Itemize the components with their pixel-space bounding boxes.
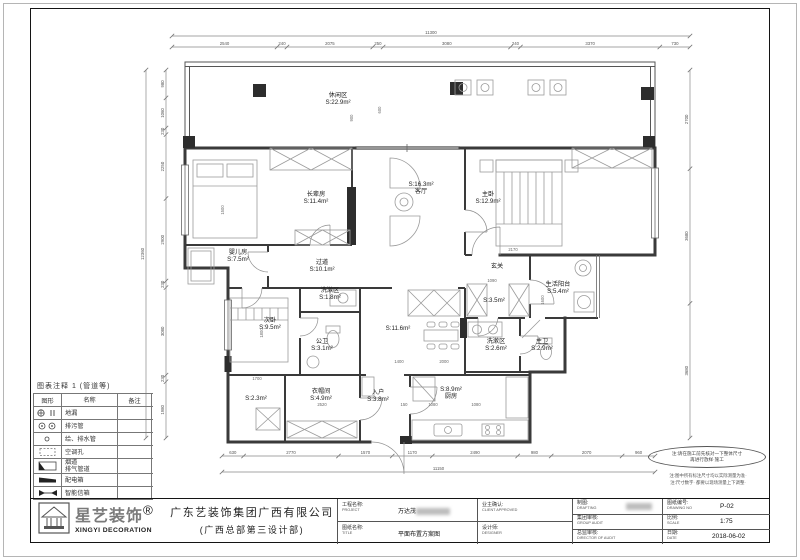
legend-table: 图表注释 1 (管道等) 图形名称备注地漏排污管给、排水管空调孔烟道 排气管道配… xyxy=(33,381,153,500)
company-line1: 广东艺装饰集团广西有限公司 xyxy=(168,504,336,520)
legend-row: 空调孔 xyxy=(34,446,153,459)
room-label: 洗漱区S:2.6m² xyxy=(485,337,507,352)
room-label: S:8.9m²厨房 xyxy=(440,386,462,400)
room-label: 长辈房S:11.4m² xyxy=(304,190,329,205)
power-box-icon xyxy=(34,474,62,486)
svg-text:1170: 1170 xyxy=(408,450,418,455)
room-label: 入户S:3.8m² xyxy=(367,388,389,403)
svg-text:1500: 1500 xyxy=(220,205,225,215)
legend-header-row: 图形名称备注 xyxy=(34,394,153,407)
room-label: S:3.5m² xyxy=(483,297,505,304)
legend-row: 烟道 排气管道 xyxy=(34,459,153,474)
registered-mark: ® xyxy=(143,503,153,518)
floor-drain-icon xyxy=(34,407,62,419)
svg-text:240: 240 xyxy=(278,41,286,46)
doors xyxy=(242,210,554,474)
room-label: S:11.6m² xyxy=(386,325,411,332)
svg-text:1700: 1700 xyxy=(252,376,262,381)
drawing-sheet: 1130025402402075250308024033707306302770… xyxy=(0,0,800,560)
redacted-text xyxy=(416,508,450,515)
room-label: 婴儿房S:7.5m² xyxy=(227,248,249,263)
room-label: 生活阳台S:5.4m² xyxy=(546,280,571,295)
svg-text:3080: 3080 xyxy=(442,41,452,46)
company-logo: 星艺装饰® XINGYI DECORATION xyxy=(38,502,168,534)
svg-text:1090: 1090 xyxy=(487,278,497,283)
svg-text:3680: 3680 xyxy=(684,365,689,375)
svg-text:2520: 2520 xyxy=(317,402,327,407)
svg-text:630: 630 xyxy=(229,450,237,455)
drawing-no-value: P-02 xyxy=(720,503,734,510)
svg-text:2250: 2250 xyxy=(160,161,165,171)
svg-text:11300: 11300 xyxy=(425,30,437,35)
date-label: 日期: DATE xyxy=(667,531,678,541)
svg-text:3680: 3680 xyxy=(684,231,689,241)
client-approved-label: 业主确认: CLIENT APPROVED xyxy=(482,503,517,513)
legend-row: 给、排水管 xyxy=(34,433,153,446)
note-line: 再进行放样·施工 xyxy=(649,457,765,463)
drafting-value xyxy=(626,503,652,510)
svg-text:3080: 3080 xyxy=(160,326,165,336)
designer-label: 设计师: DESIGNER xyxy=(482,526,502,536)
room-label: S:2.3m² xyxy=(245,395,267,402)
svg-text:600: 600 xyxy=(377,106,382,114)
room-label: 衣帽间S:4.9m² xyxy=(310,387,332,402)
svg-text:11150: 11150 xyxy=(433,466,445,471)
room-label: 过道S:10.1m² xyxy=(309,258,334,273)
logo-emblem-icon xyxy=(38,502,70,534)
room-label: 公卫S:3.1m² xyxy=(311,338,333,352)
water-pipe-icon xyxy=(34,433,62,445)
svg-text:230: 230 xyxy=(160,280,165,288)
svg-text:1060: 1060 xyxy=(160,108,165,118)
svg-text:1400: 1400 xyxy=(394,359,404,364)
legend-title: 图表注释 1 (管道等) xyxy=(33,381,153,391)
group-audit-label: 集团审核: GROUP AUDIT xyxy=(577,516,603,526)
legend-row: 地漏 xyxy=(34,407,153,420)
room-label: 主卧S:12.9m² xyxy=(475,190,500,205)
brand-subtitle: XINGYI DECORATION xyxy=(75,527,153,534)
title-block: 星艺装饰® XINGYI DECORATION 广东艺装饰集团广西有限公司 (广… xyxy=(30,498,770,543)
furniture xyxy=(188,80,652,440)
divider xyxy=(662,499,663,544)
svg-text:12360: 12360 xyxy=(140,247,145,260)
divider xyxy=(572,499,573,544)
company-name: 广东艺装饰集团广西有限公司 (广西总部第三设计部) xyxy=(168,504,336,536)
svg-text:960: 960 xyxy=(635,450,643,455)
drawing-title-value: 平面布置方案图 xyxy=(398,529,440,538)
note-line: 注:尺寸数字· 都要以现场测量上下调整· xyxy=(648,480,768,487)
room-label: 次卧S:9.5m² xyxy=(259,316,281,331)
svg-text:230: 230 xyxy=(160,127,165,135)
company-line2: (广西总部第三设计部) xyxy=(168,523,336,536)
site-note-ellipse: 注:请在施工前先核对一下整体尺寸 再进行放样·施工 xyxy=(648,446,766,468)
project-value: 万达茂 xyxy=(398,506,450,515)
room-label: 洗漱区S:1.8m² xyxy=(319,286,341,301)
room-label: 玄关 xyxy=(491,262,503,270)
svg-text:980: 980 xyxy=(160,80,165,88)
legend-row: 配电箱 xyxy=(34,474,153,487)
ac-hole-icon xyxy=(34,446,62,458)
flue-icon xyxy=(34,459,62,473)
legend-rows: 图形名称备注地漏排污管给、排水管空调孔烟道 排气管道配电箱智能信箱 xyxy=(33,393,153,500)
svg-text:3370: 3370 xyxy=(585,41,595,46)
svg-text:2490: 2490 xyxy=(470,450,480,455)
room-label: 休闲区S:22.9m² xyxy=(325,91,350,106)
columns xyxy=(183,82,655,444)
svg-text:2900: 2900 xyxy=(160,234,165,244)
director-audit-label: 总监审核: DIRECTOR OF AUDIT xyxy=(577,531,615,541)
redacted-text xyxy=(626,503,652,510)
brand-name: 星艺装饰 xyxy=(75,508,143,525)
scale-value: 1:75 xyxy=(720,518,733,525)
svg-text:980: 980 xyxy=(531,450,539,455)
room-label: 主卫S:2.9m² xyxy=(531,337,553,352)
svg-text:2075: 2075 xyxy=(325,41,335,46)
date-value: 2018-06-02 xyxy=(712,533,745,540)
svg-text:730: 730 xyxy=(671,41,679,46)
legend-row: 排污管 xyxy=(34,420,153,433)
svg-text:2170: 2170 xyxy=(508,247,518,252)
svg-text:2770: 2770 xyxy=(286,450,296,455)
svg-text:1980: 1980 xyxy=(160,404,165,414)
drafting-label: 制图: DRAFTING xyxy=(577,501,596,511)
svg-text:2540: 2540 xyxy=(220,41,230,46)
balcony-outline xyxy=(185,62,655,148)
svg-text:1080: 1080 xyxy=(471,402,481,407)
svg-text:1600: 1600 xyxy=(540,295,545,305)
project-label: 工程名称: PROJECT xyxy=(342,503,363,513)
svg-text:2000: 2000 xyxy=(439,359,449,364)
site-notes: 注:图中所有标注尺寸均以实际测量为准· 注:尺寸数字· 都要以现场测量上下调整· xyxy=(648,473,768,486)
drawing-no-label: 图纸编号: DRAWING NO xyxy=(667,501,692,511)
svg-text:1570: 1570 xyxy=(361,450,371,455)
svg-text:240: 240 xyxy=(512,41,520,46)
svg-text:2070: 2070 xyxy=(582,450,592,455)
svg-text:250: 250 xyxy=(374,41,382,46)
svg-text:900: 900 xyxy=(349,114,354,122)
svg-text:230: 230 xyxy=(160,374,165,382)
svg-text:150: 150 xyxy=(401,402,409,407)
scale-label: 比例: SCALE xyxy=(667,516,679,526)
sewage-pipe-icon xyxy=(34,420,62,432)
svg-text:1080: 1080 xyxy=(428,402,438,407)
svg-text:2700: 2700 xyxy=(684,114,689,124)
divider xyxy=(337,521,572,522)
drawing-title-label: 图纸名称: TITLE xyxy=(342,526,363,536)
